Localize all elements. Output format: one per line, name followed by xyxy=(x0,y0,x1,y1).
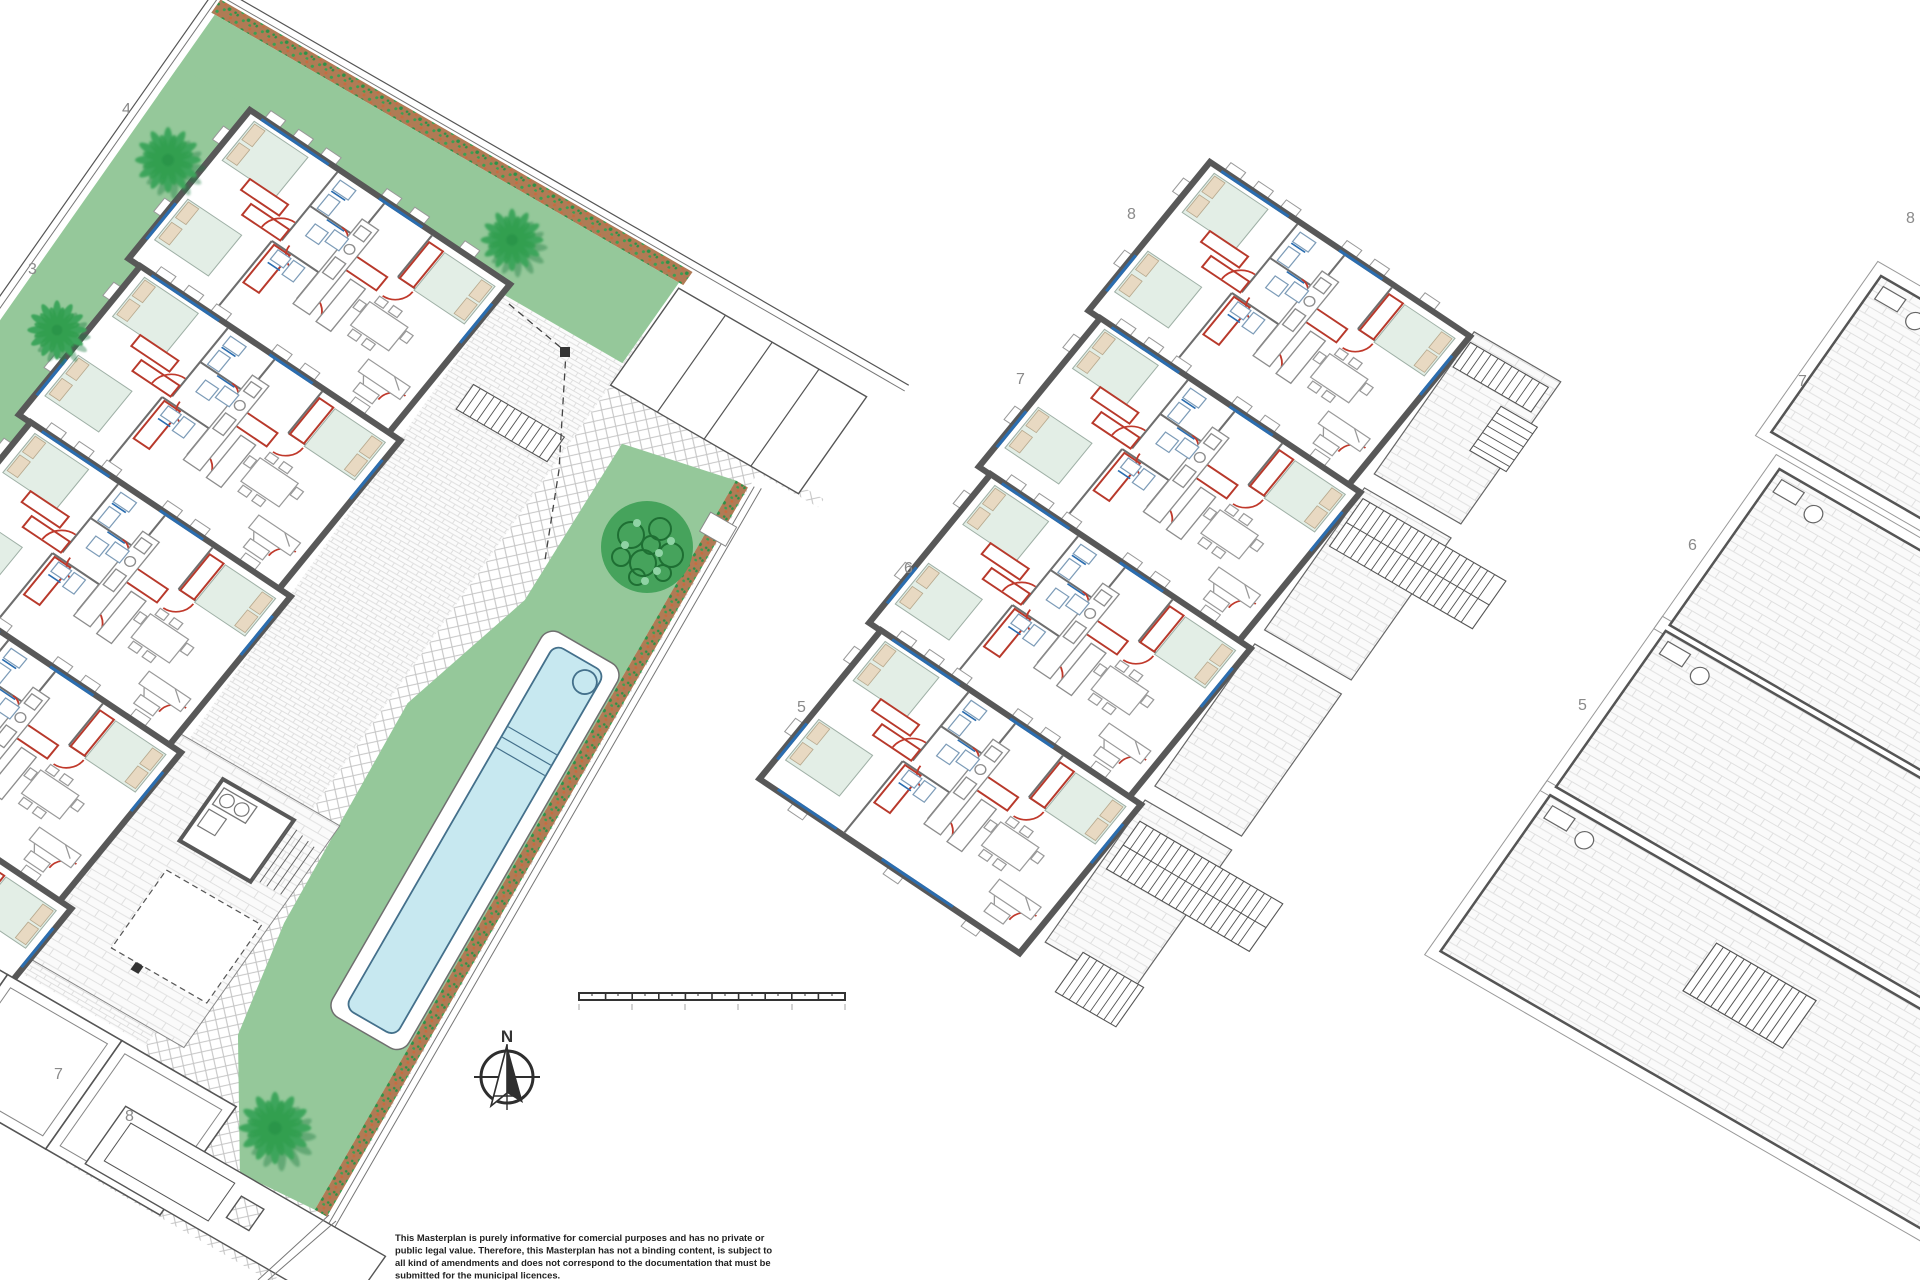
svg-text:N: N xyxy=(501,1027,513,1046)
svg-text:5: 5 xyxy=(1578,697,1587,714)
svg-text:8: 8 xyxy=(1127,206,1136,223)
svg-text:all kind of amendments and doe: all kind of amendments and does not corr… xyxy=(395,1257,771,1268)
svg-text:8: 8 xyxy=(125,1108,134,1125)
svg-text:6: 6 xyxy=(904,560,913,577)
svg-text:7: 7 xyxy=(1016,371,1025,388)
svg-text:3: 3 xyxy=(28,261,37,278)
svg-text:6: 6 xyxy=(1688,537,1697,554)
svg-text:submitted for the municipal li: submitted for the municipal licences. xyxy=(395,1270,560,1280)
svg-text:4: 4 xyxy=(122,101,131,118)
svg-text:7: 7 xyxy=(1798,373,1807,390)
svg-text:8: 8 xyxy=(1906,210,1915,227)
svg-text:7: 7 xyxy=(54,1066,63,1083)
svg-text:5: 5 xyxy=(797,699,806,716)
svg-text:This Masterplan is purely info: This Masterplan is purely informative fo… xyxy=(395,1232,765,1243)
svg-text:public legal value. Therefore,: public legal value. Therefore, this Mast… xyxy=(395,1245,772,1256)
